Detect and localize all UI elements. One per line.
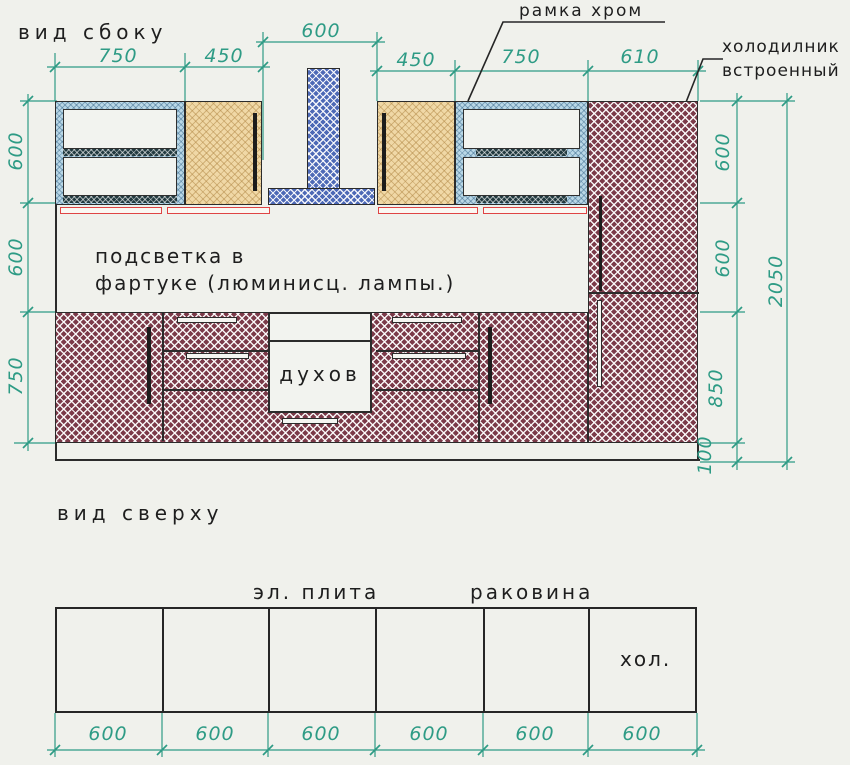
glass-door-panel [463, 157, 580, 196]
dim-600-right-upper: 600 [712, 132, 734, 171]
oven-label: духов [279, 362, 361, 386]
dim-610: 610 [620, 46, 659, 68]
dim-750-left-base: 750 [5, 356, 27, 395]
drawer-divider [163, 350, 269, 352]
glass-door-panel [463, 109, 580, 149]
fridge-column [588, 101, 698, 443]
stove-label: эл. плита [253, 580, 379, 604]
chrome-frame-label: рамка хром [519, 1, 643, 21]
upper-cabinet-left [55, 101, 185, 205]
drawer-handle [392, 353, 466, 359]
plan-divider [588, 609, 590, 711]
dim-600-left-upper: 600 [5, 131, 27, 170]
shelf-strip [63, 196, 177, 203]
plan-divider [268, 609, 270, 711]
hood-chimney [307, 68, 340, 190]
glass-door-panel [63, 109, 177, 149]
door-handle [488, 327, 492, 404]
door-handle [147, 327, 151, 404]
upper-cabinet-right [455, 101, 588, 205]
oven-door-line [270, 340, 370, 342]
plan-divider [375, 609, 377, 711]
dim-750-left: 750 [98, 45, 137, 67]
dim-600-right-mid: 600 [712, 238, 734, 277]
drawer-divider [163, 389, 269, 391]
hood-base [268, 188, 375, 205]
plan-dim-5: 600 [515, 723, 554, 745]
fridge-upper-handle [599, 196, 602, 291]
fridge-label-line1: холодилник [722, 37, 840, 57]
shelf-strip [476, 149, 567, 156]
drawer-handle [392, 317, 462, 323]
light-strip [483, 207, 587, 214]
section-divider [162, 313, 164, 441]
dim-2050-total: 2050 [765, 255, 787, 307]
light-strip [60, 207, 162, 214]
section-divider [478, 313, 480, 441]
backsplash-label-line1: подсветка в [95, 244, 245, 268]
dim-750-right: 750 [501, 46, 540, 68]
oven-handle [282, 418, 338, 424]
dim-600-hood: 600 [301, 20, 340, 42]
glass-door-panel [63, 157, 177, 196]
drawer-divider [376, 350, 479, 352]
dim-450-left: 450 [204, 45, 243, 67]
backsplash-label-line2: фартуке (люминисц. лампы.) [95, 271, 455, 295]
door-handle [382, 113, 386, 191]
plan-dim-4: 600 [409, 723, 448, 745]
top-view-title: вид сверху [57, 501, 223, 525]
plan-divider [483, 609, 485, 711]
plan-dim-2: 600 [195, 723, 234, 745]
fridge-lower-handle [597, 300, 602, 387]
door-handle [253, 113, 257, 191]
fridge-door-split [589, 292, 699, 294]
shelf-strip [63, 149, 177, 156]
drawer-handle [186, 353, 249, 359]
plan-divider [162, 609, 164, 711]
shelf-strip [476, 196, 567, 203]
dim-600-left-mid: 600 [5, 237, 27, 276]
dim-850: 850 [705, 368, 727, 407]
fridge-label-line2: встроенный [722, 61, 840, 81]
oven: духов [268, 312, 372, 413]
light-strip [167, 207, 270, 214]
plan-dim-1: 600 [88, 723, 127, 745]
dim-450-right: 450 [396, 49, 435, 71]
plan-dim-6: 600 [622, 723, 661, 745]
light-strip [378, 207, 478, 214]
plan-dim-3: 600 [301, 723, 340, 745]
blueprint-canvas: духов вид сбоку рамка хром холодилник вс… [0, 0, 850, 765]
upper-panel-450-left [185, 101, 262, 205]
plan-fridge-label: хол. [620, 647, 671, 671]
plan-counter-run [55, 607, 697, 713]
upper-panel-450-right [377, 101, 455, 205]
drawer-handle [177, 317, 237, 323]
dim-100: 100 [694, 435, 716, 474]
side-view-title: вид сбоку [18, 20, 167, 44]
sink-label: раковина [470, 580, 593, 604]
drawer-divider [376, 389, 479, 391]
